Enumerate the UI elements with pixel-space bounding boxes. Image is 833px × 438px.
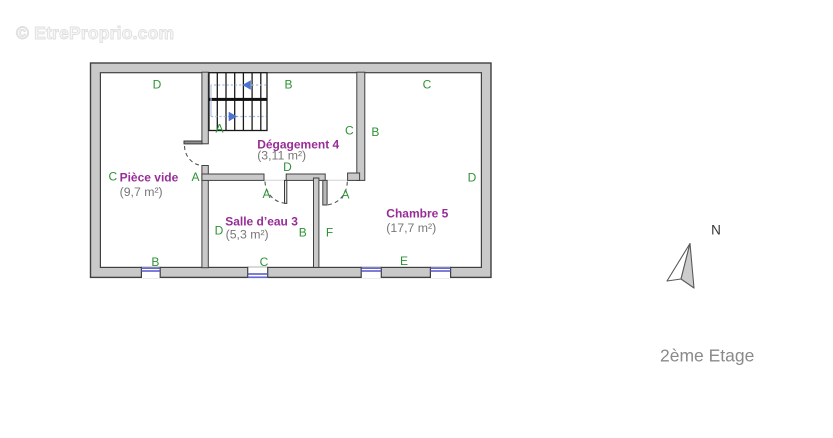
svg-text:Chambre 5: Chambre 5 <box>386 207 448 221</box>
svg-text:B: B <box>284 78 292 92</box>
svg-text:C: C <box>423 78 432 92</box>
svg-text:(9,7 m²): (9,7 m²) <box>120 185 163 199</box>
svg-text:(17,7 m²): (17,7 m²) <box>386 221 436 235</box>
svg-text:A: A <box>215 122 223 136</box>
svg-text:A: A <box>262 187 270 201</box>
svg-text:(3,11 m²): (3,11 m²) <box>257 149 306 163</box>
svg-text:2ème Etage: 2ème Etage <box>660 346 754 366</box>
svg-text:Pièce vide: Pièce vide <box>120 171 179 185</box>
svg-text:D: D <box>215 224 224 238</box>
svg-text:C: C <box>260 255 269 269</box>
svg-text:E: E <box>400 254 408 268</box>
svg-text:© EtreProprio.com: © EtreProprio.com <box>16 23 174 43</box>
svg-text:A: A <box>191 170 199 184</box>
svg-text:C: C <box>108 170 117 184</box>
svg-text:(5,3 m²): (5,3 m²) <box>226 228 269 242</box>
svg-text:C: C <box>345 124 354 138</box>
svg-text:F: F <box>326 226 333 240</box>
svg-text:D: D <box>468 171 477 185</box>
svg-text:D: D <box>153 78 162 92</box>
svg-text:B: B <box>151 255 159 269</box>
svg-text:A: A <box>341 187 349 201</box>
svg-text:Salle d’eau 3: Salle d’eau 3 <box>225 215 298 229</box>
svg-text:B: B <box>371 125 379 139</box>
svg-text:B: B <box>299 226 307 240</box>
svg-text:N: N <box>711 223 721 238</box>
